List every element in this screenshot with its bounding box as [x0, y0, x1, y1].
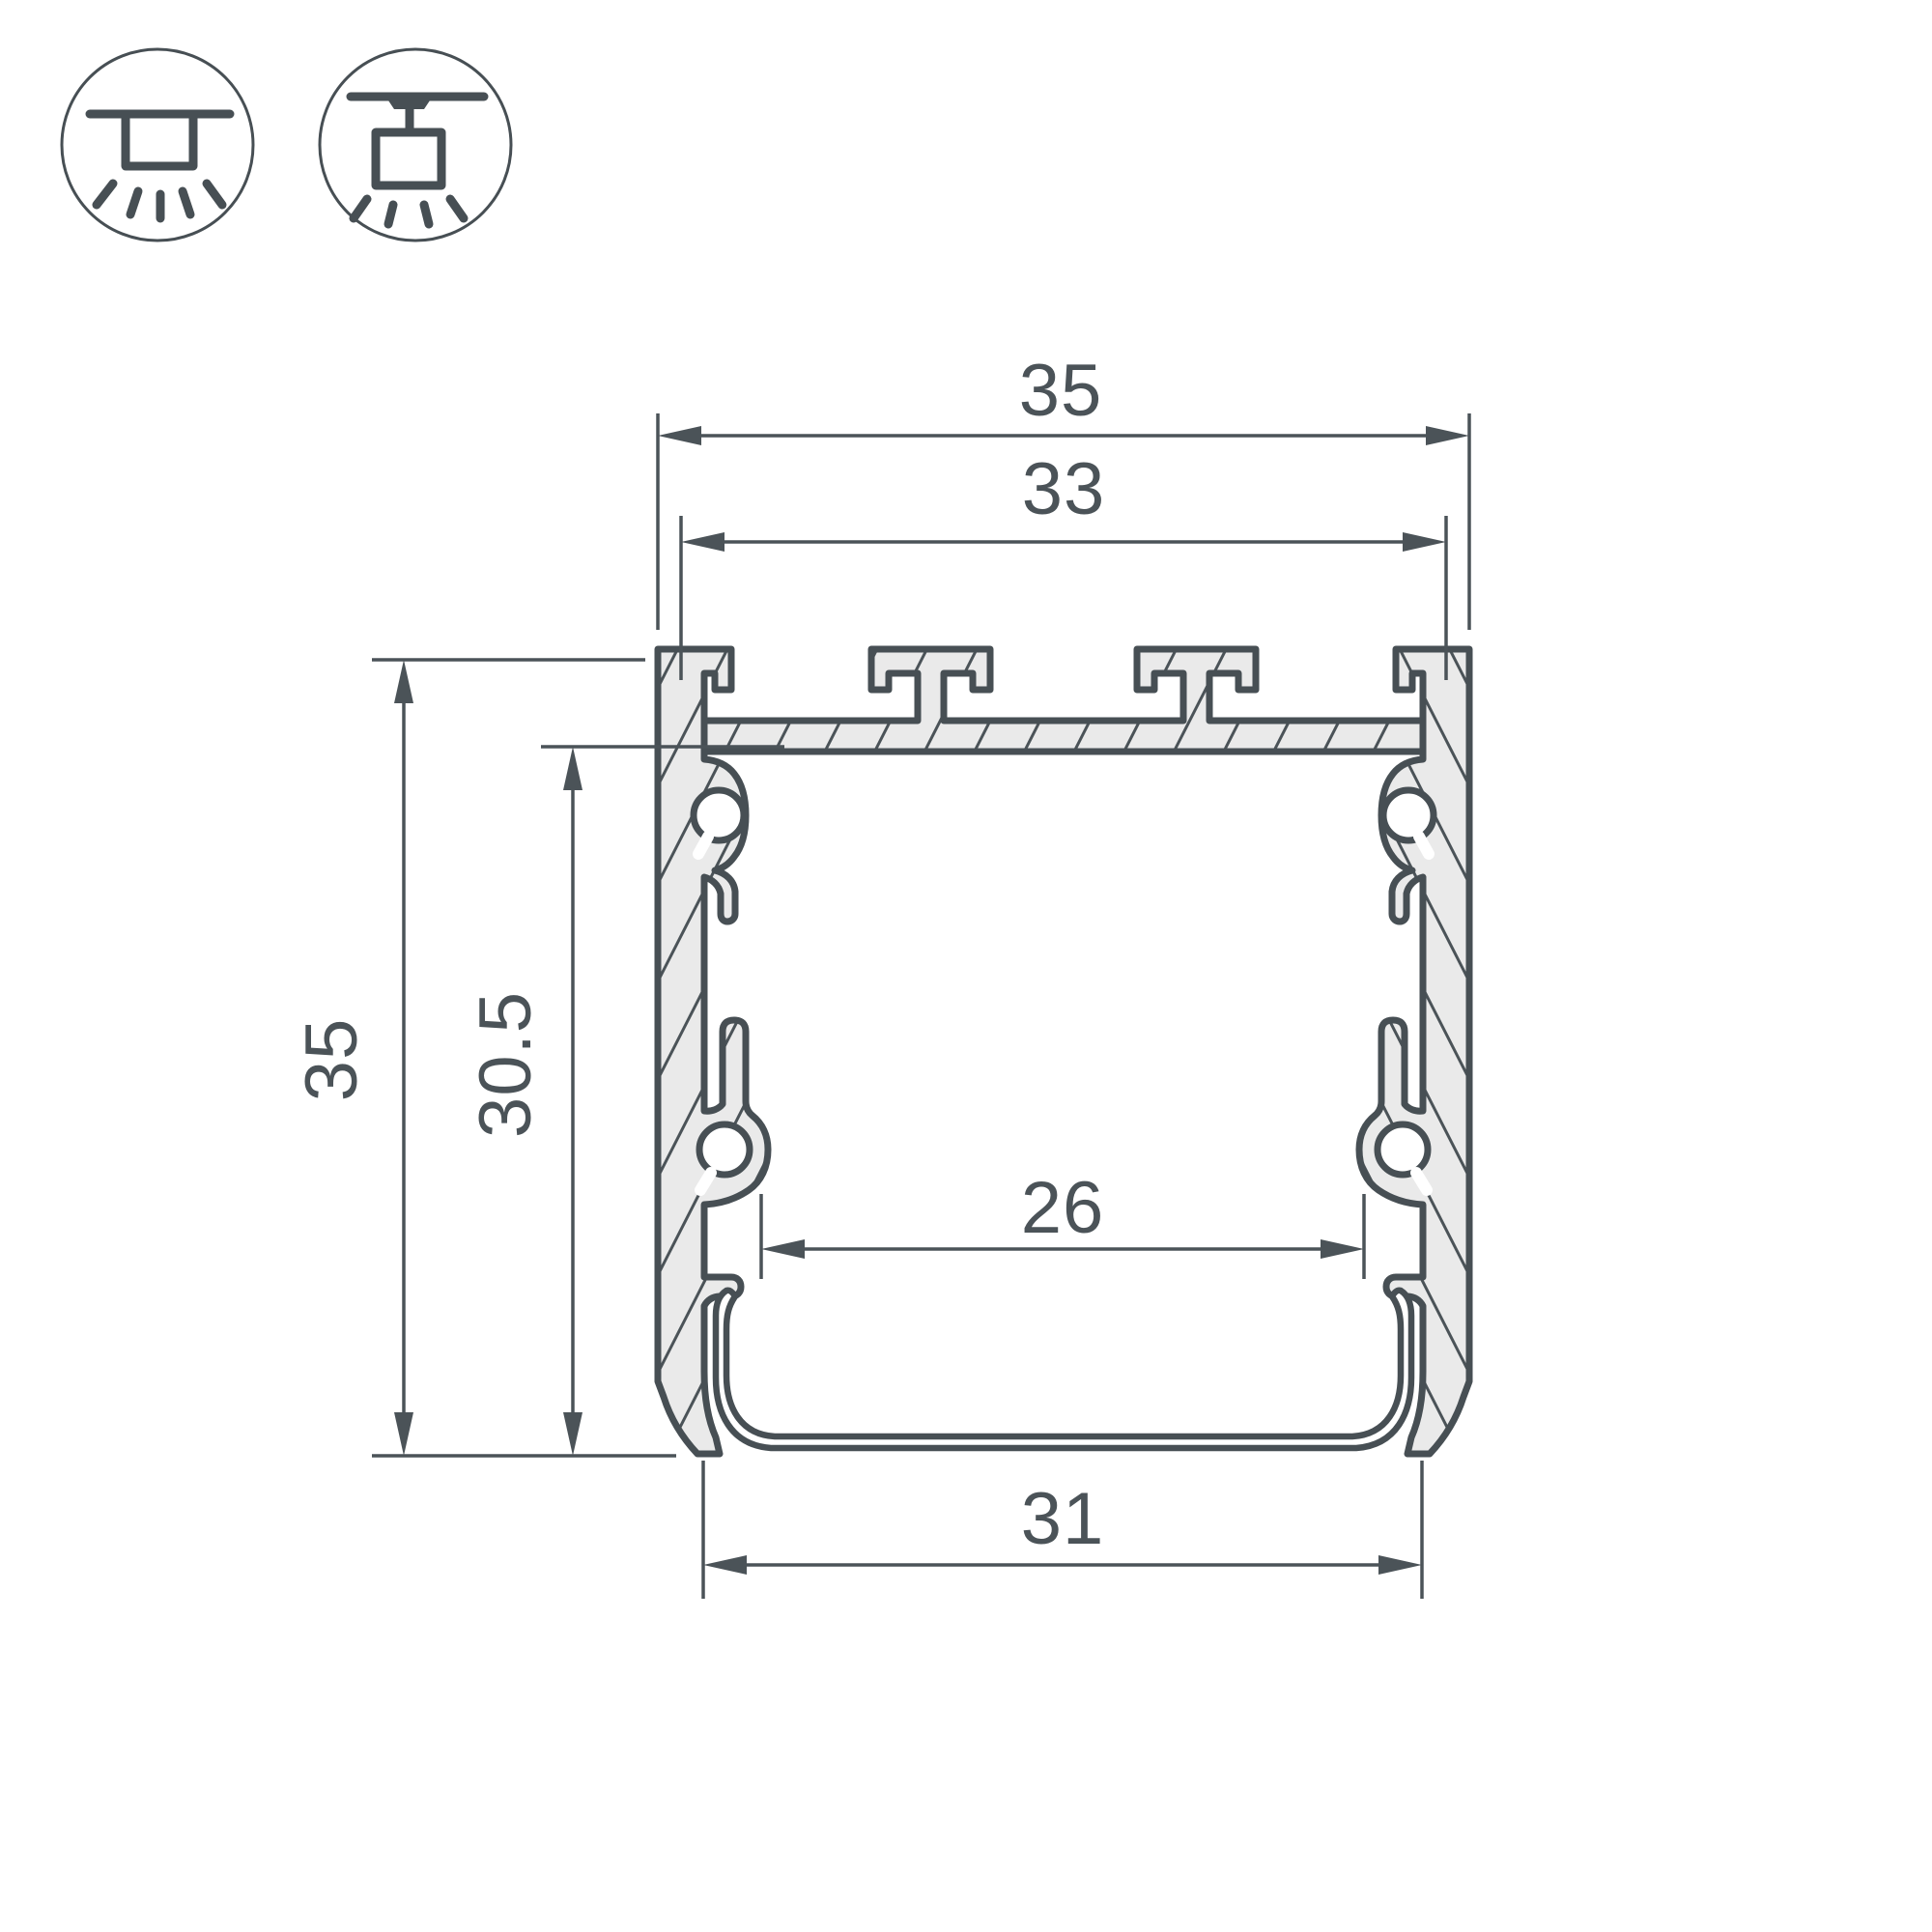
dim-label-inner-width-top: 33	[1022, 448, 1106, 530]
profile-top-plate-t-ribs	[704, 649, 1423, 752]
arrowhead	[1378, 1555, 1422, 1575]
profile-body	[658, 649, 1469, 1454]
screw-hole-lower-left	[699, 1124, 750, 1175]
profile-cross-section-drawing: 35 33 35 30.5 26 31	[0, 0, 1932, 1932]
dim-label-outer-width-top: 35	[1019, 350, 1103, 432]
arrowhead	[658, 426, 701, 445]
screw-hole-upper-right	[1383, 790, 1434, 840]
screw-hole-lower-right	[1378, 1124, 1428, 1175]
arrowhead	[681, 532, 724, 552]
dimension-inner-width-top	[681, 516, 1446, 680]
light-rays-icon	[354, 199, 464, 224]
ceiling-surface-mount-icon	[62, 49, 253, 241]
screw-hole-upper-left	[694, 790, 744, 840]
diffuser-cover	[716, 1291, 1411, 1448]
arrowhead	[761, 1239, 805, 1259]
arrowhead	[1426, 426, 1469, 445]
arrowhead	[394, 1412, 413, 1456]
dim-label-overall-height: 35	[291, 1018, 373, 1102]
mounting-icons	[62, 49, 511, 241]
arrowhead	[1321, 1239, 1364, 1259]
arrowhead	[563, 747, 582, 790]
arrowhead	[1403, 532, 1446, 552]
dim-label-inner-channel-width: 26	[1021, 1167, 1105, 1249]
technical-drawing-page: 35 33 35 30.5 26 31	[0, 0, 1932, 1932]
arrowhead	[394, 660, 413, 703]
pendant-suspension-mount-icon	[320, 49, 511, 241]
arrowhead	[703, 1555, 747, 1575]
arrowhead	[563, 1412, 582, 1456]
screw-holes	[694, 790, 1434, 1175]
screw-collar-openings	[698, 837, 1429, 1190]
dim-label-inner-height: 30.5	[465, 991, 547, 1138]
dim-label-bottom-width: 31	[1021, 1478, 1105, 1560]
light-rays-icon	[97, 184, 222, 218]
